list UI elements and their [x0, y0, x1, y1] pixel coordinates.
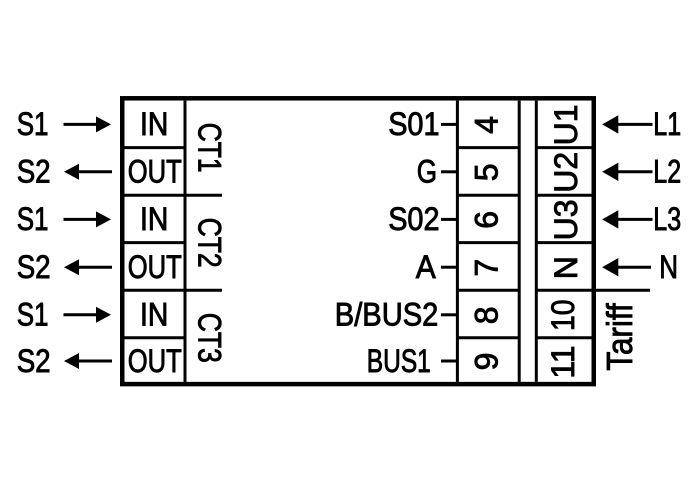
svg-text:CT3: CT3 [192, 313, 228, 363]
svg-text:CT2: CT2 [192, 218, 228, 268]
svg-text:U1: U1 [548, 104, 584, 145]
svg-text:5: 5 [468, 163, 504, 181]
svg-text:S2: S2 [17, 154, 51, 190]
svg-text:BUS1: BUS1 [367, 343, 431, 379]
svg-text:N: N [548, 256, 584, 279]
svg-text:L1: L1 [653, 106, 681, 142]
svg-text:IN: IN [140, 201, 168, 237]
svg-text:11: 11 [545, 345, 581, 378]
svg-text:S2: S2 [17, 343, 51, 379]
svg-text:8: 8 [468, 306, 504, 324]
svg-text:N: N [659, 249, 678, 285]
svg-text:IN: IN [140, 297, 168, 333]
svg-text:OUT: OUT [128, 343, 182, 379]
svg-text:S1: S1 [17, 201, 49, 237]
svg-text:6: 6 [468, 211, 504, 229]
svg-text:4: 4 [468, 116, 504, 134]
svg-text:B/BUS2: B/BUS2 [335, 297, 439, 333]
svg-text:U3: U3 [548, 199, 584, 240]
svg-text:S01: S01 [388, 106, 439, 142]
svg-text:10: 10 [545, 300, 581, 332]
svg-text:Tariff: Tariff [599, 302, 640, 370]
svg-text:OUT: OUT [128, 154, 182, 190]
svg-text:S02: S02 [388, 201, 439, 237]
svg-text:L3: L3 [653, 201, 681, 237]
svg-text:9: 9 [468, 353, 504, 371]
svg-text:G: G [417, 154, 437, 190]
svg-text:U2: U2 [548, 152, 584, 193]
svg-text:OUT: OUT [128, 249, 182, 285]
svg-text:7: 7 [468, 259, 504, 277]
svg-text:IN: IN [140, 106, 168, 142]
svg-text:CT1: CT1 [192, 123, 228, 173]
svg-text:S1: S1 [17, 106, 49, 142]
svg-text:L2: L2 [653, 154, 681, 190]
svg-text:S2: S2 [17, 249, 51, 285]
svg-text:A: A [416, 249, 437, 285]
svg-text:S1: S1 [17, 297, 49, 333]
